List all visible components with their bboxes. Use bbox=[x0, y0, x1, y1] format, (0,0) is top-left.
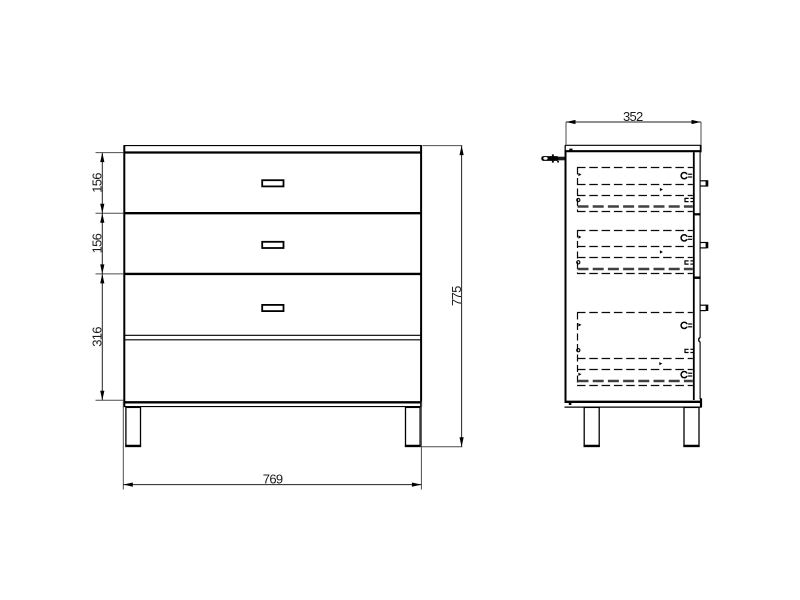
svg-text:316: 316 bbox=[90, 327, 105, 347]
svg-text:156: 156 bbox=[90, 233, 105, 253]
svg-text:156: 156 bbox=[90, 173, 105, 193]
svg-text:352: 352 bbox=[623, 109, 643, 124]
svg-text:769: 769 bbox=[263, 472, 283, 487]
svg-text:775: 775 bbox=[449, 286, 464, 306]
